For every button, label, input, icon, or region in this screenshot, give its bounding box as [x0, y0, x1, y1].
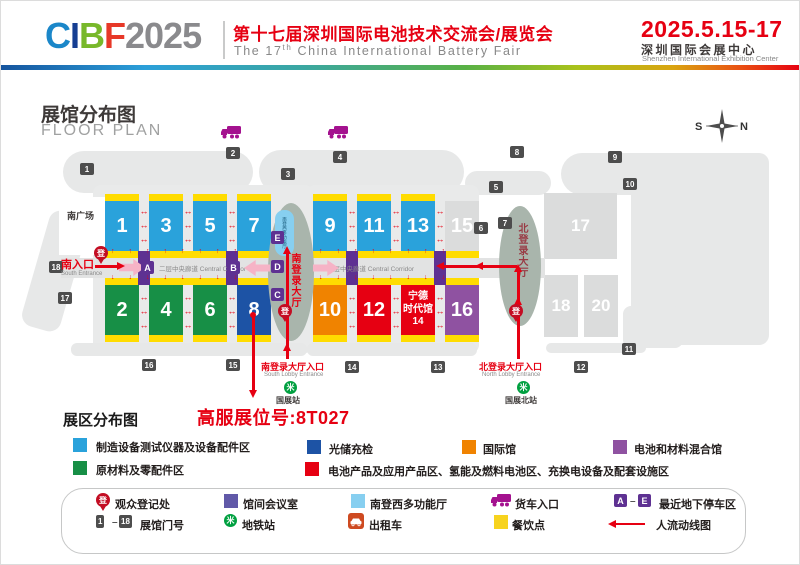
- truck-icon: [220, 125, 242, 145]
- facility-label: 南登西多功能厅: [370, 496, 447, 512]
- dining-swatch: [494, 515, 508, 529]
- logo-divider: [223, 21, 225, 59]
- hall-11: 11: [357, 201, 391, 251]
- south-plaza-label: 南广场: [67, 209, 94, 222]
- parking-marker-a: A: [141, 261, 154, 274]
- truck-icon-legend: [490, 493, 512, 513]
- corridor-flow-arrowhead: [475, 262, 483, 270]
- hall-7: 7: [237, 201, 271, 251]
- venue-name-en: Shenzhen International Exhibition Center: [642, 54, 778, 63]
- hall-10: 10: [313, 285, 347, 335]
- header-gradient-bar: [1, 65, 800, 70]
- south-entrance-label-en: South Entrance: [61, 271, 102, 277]
- hall-1: 1: [105, 201, 139, 251]
- hall-9: 9: [313, 201, 347, 251]
- gate-12: 12: [574, 361, 588, 373]
- hall-cap: [237, 194, 271, 201]
- gate-16: 16: [142, 359, 156, 371]
- hall-cap: [193, 194, 227, 201]
- zone-label: 国际馆: [483, 441, 516, 457]
- south-lobby-label: 南登录大厅: [287, 253, 302, 339]
- metro-south-label: 国展站: [276, 395, 300, 406]
- aisle-arrows: ↔ ↔ ↔: [434, 204, 446, 246]
- aisle-arrows: ↔ ↔ ↔: [182, 290, 194, 332]
- logo-year: 2025: [125, 15, 201, 56]
- gate-8: 8: [510, 146, 524, 158]
- registration-pin: 登: [94, 246, 108, 260]
- zone-swatch: [73, 438, 87, 452]
- building-outline: [307, 343, 477, 356]
- facility-label: 人流动线图: [656, 517, 711, 533]
- metro-north-label: 国展北站: [505, 395, 537, 406]
- aisle-arrows: ↔ ↔ ↔: [138, 290, 150, 332]
- hall-16: 16: [445, 285, 479, 335]
- south-lobby-entrance-en: South Lobby Entrance: [264, 372, 323, 378]
- north-lobby-entrance-en: North Lobby Entrance: [482, 372, 540, 378]
- parking-a-swatch: A: [614, 494, 627, 507]
- gate-14: 14: [345, 361, 359, 373]
- south-entrance-label-cn: 南入口: [61, 256, 94, 272]
- zone-swatch: [462, 440, 476, 454]
- corridor-up-arrows: ↑↑↑↑↑↑↑↑: [111, 248, 251, 255]
- hall-cap: [313, 335, 347, 342]
- corridor-flow-arrowhead: [436, 262, 444, 270]
- zone-label: 原材料及零配件区: [96, 462, 184, 478]
- facility-label: 货车入口: [515, 496, 559, 512]
- hall-5: 5: [193, 201, 227, 251]
- hall-cap: [401, 335, 435, 342]
- corridor-down-arrows: ↓↓↓↓↓↓↓↓: [111, 274, 251, 281]
- hall-14-catl: 宁德时代馆14: [401, 285, 435, 335]
- parking-marker-e: E: [271, 231, 284, 244]
- hall-cap: [401, 194, 435, 201]
- meeting-room-swatch: [224, 494, 238, 508]
- hall-cap: [357, 335, 391, 342]
- registration-pin: 登: [278, 304, 292, 318]
- facility-label: 展馆门号: [140, 517, 184, 533]
- gate-9: 9: [608, 151, 622, 163]
- flow-legend-line: [615, 523, 645, 525]
- south-flow-arrowhead: [283, 343, 291, 351]
- floorplan-title-en: FLOOR PLAN: [41, 122, 162, 140]
- multifunction-swatch: [351, 494, 365, 508]
- zone-legend-title: 展区分布图: [63, 409, 138, 430]
- gate-6: 6: [474, 222, 488, 234]
- zone-label: 电池和材料混合馆: [634, 441, 722, 457]
- hall-20: 20: [584, 275, 618, 337]
- hall-cap: [105, 194, 139, 201]
- gate-10: 10: [623, 178, 637, 190]
- parking-e-swatch: E: [638, 494, 651, 507]
- aisle-arrows: ↔ ↔ ↔: [390, 290, 402, 332]
- event-dates: 2025.5.15-17: [641, 16, 783, 43]
- gate-3: 3: [281, 168, 295, 180]
- fair-title-en: The 17th China International Battery Fai…: [234, 43, 522, 58]
- building-outline: [623, 306, 683, 348]
- gate-range-from: 1: [96, 515, 104, 528]
- hall-6: 6: [193, 285, 227, 335]
- aisle-arrows: ↔ ↔ ↔: [138, 204, 150, 246]
- entrance-flow-arrowhead: [117, 262, 125, 270]
- gate-2: 2: [226, 147, 240, 159]
- booth-number-callout: 高服展位号:8T027: [197, 404, 350, 430]
- gate-17: 17: [58, 292, 72, 304]
- compass-south: S: [695, 121, 702, 133]
- facility-label: 出租车: [369, 517, 402, 533]
- parking-marker-b: B: [227, 261, 240, 274]
- page: CIBF2025 第十七届深圳国际电池技术交流会/展览会 The 17th Ch…: [0, 0, 800, 565]
- hall-4: 4: [149, 285, 183, 335]
- hall-13: 13: [401, 201, 435, 251]
- hall-cap: [105, 335, 139, 342]
- gate-4: 4: [333, 151, 347, 163]
- logo-letter-b: B: [79, 15, 104, 56]
- hall-cap: [193, 335, 227, 342]
- facility-label: 地铁站: [242, 517, 275, 533]
- registration-pin-legend: 登: [96, 493, 110, 507]
- compass-north: N: [740, 121, 748, 133]
- metro-station-icon: 米: [284, 381, 297, 394]
- aisle-arrows: ↔ ↔ ↔: [182, 204, 194, 246]
- aisle-arrows: ↔ ↔ ↔: [390, 204, 402, 246]
- range-dash: –: [112, 517, 118, 528]
- hall-cap: [445, 335, 479, 342]
- gate-11: 11: [622, 343, 636, 355]
- compass: S N: [693, 105, 751, 152]
- entrance-flow-line: [95, 265, 117, 268]
- zone-swatch: [73, 461, 87, 475]
- gate-range-to: 18: [119, 515, 132, 528]
- corridor-label-east: 二层中央廊道 Central Corridor: [327, 263, 414, 273]
- aisle-arrows: ↔ ↔ ↔: [226, 290, 238, 332]
- metro-station-icon: 米: [517, 381, 530, 394]
- gate-5: 5: [489, 181, 503, 193]
- aisle-arrows: ↔ ↔ ↔: [434, 290, 446, 332]
- corridor-up-arrows: ↑↑↑↑↑↑↑↑: [319, 248, 459, 255]
- metro-icon-legend: 米: [224, 514, 237, 527]
- hall-18: 18: [544, 275, 578, 337]
- fair-title-cn: 第十七届深圳国际电池技术交流会/展览会: [233, 20, 553, 45]
- booth-pointer-line: [252, 317, 255, 391]
- cibf-logo: CIBF2025: [45, 15, 201, 57]
- gate-7: 7: [498, 217, 512, 229]
- hall-cap: [357, 194, 391, 201]
- facility-label: 观众登记处: [115, 496, 170, 512]
- south-flow-arrowhead: [283, 246, 291, 254]
- aisle-arrows: ↔ ↔ ↔: [346, 290, 358, 332]
- building-outline: [71, 343, 307, 356]
- hall-cap: [149, 335, 183, 342]
- zone-swatch: [307, 440, 321, 454]
- facility-label: 餐饮点: [512, 517, 545, 533]
- booth-pointer-arrowhead: [249, 390, 257, 398]
- facility-label: 最近地下停车区: [659, 496, 736, 512]
- parking-marker-c: C: [271, 288, 284, 301]
- hall-12: 12: [357, 285, 391, 335]
- hall-cap: [149, 194, 183, 201]
- truck-icon: [327, 125, 349, 145]
- logo-letter-i: I: [70, 15, 79, 56]
- aisle-arrows: ↔ ↔ ↔: [346, 204, 358, 246]
- logo-letter-f: F: [104, 15, 125, 56]
- parking-marker-d: D: [271, 260, 284, 273]
- zone-label: 制造设备测试仪器及设备配件区: [96, 439, 250, 455]
- gate-15: 15: [226, 359, 240, 371]
- hall-2: 2: [105, 285, 139, 335]
- registration-pin: 登: [509, 304, 523, 318]
- zone-swatch: [613, 440, 627, 454]
- hall-cap: [313, 194, 347, 201]
- corridor-down-arrows: ↓↓↓↓↓↓↓↓: [319, 274, 459, 281]
- aisle-arrows: ↔ ↔ ↔: [226, 204, 238, 246]
- zone-label: 光储充检: [329, 441, 373, 457]
- zone-swatch: [305, 462, 319, 476]
- flow-legend-arrowhead: [608, 520, 616, 528]
- logo-letter-c: C: [45, 15, 70, 56]
- zone-label: 电池产品及应用产品区、氢能及燃料电池区、充换电设备及配套设施区: [328, 463, 669, 479]
- facility-label: 馆间会议室: [243, 496, 298, 512]
- gate-1: 1: [80, 163, 94, 175]
- hall-17: 17: [544, 193, 617, 259]
- hall-3: 3: [149, 201, 183, 251]
- taxi-icon: [348, 513, 364, 534]
- gate-13: 13: [431, 361, 445, 373]
- range-dash: –: [630, 496, 636, 507]
